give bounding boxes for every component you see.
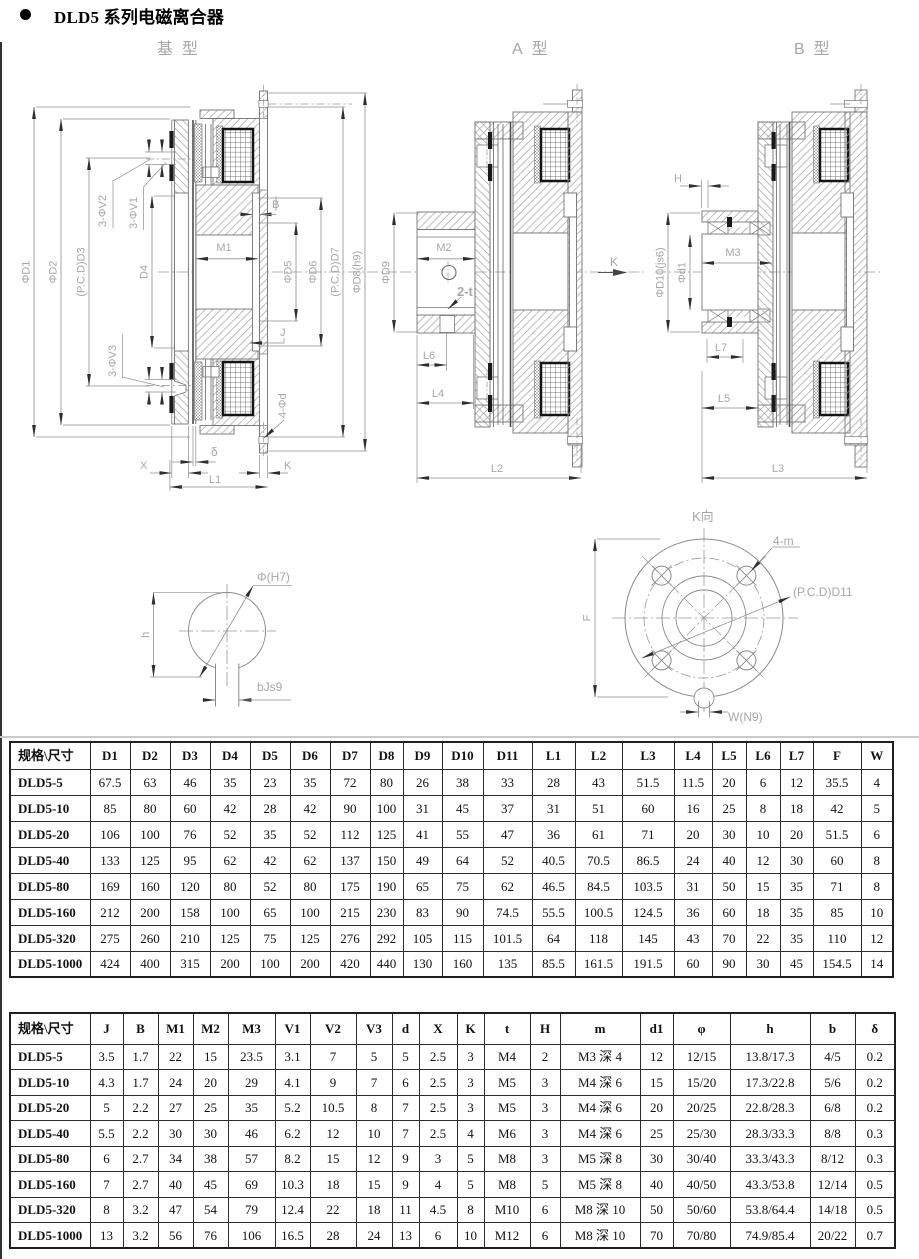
svg-text:Φd1: Φd1	[677, 262, 689, 283]
svg-text:W(N9): W(N9)	[728, 710, 763, 724]
svg-text:K: K	[284, 460, 292, 472]
svg-text:(P.C.D)D11: (P.C.D)D11	[793, 585, 853, 599]
svg-text:ΦD10(js6): ΦD10(js6)	[655, 247, 667, 297]
svg-text:L4: L4	[432, 388, 444, 400]
svg-text:A 型: A 型	[512, 40, 548, 58]
svg-text:bJs9: bJs9	[257, 680, 283, 694]
svg-text:h: h	[140, 632, 152, 638]
svg-text:F: F	[582, 614, 594, 621]
svg-text:X: X	[140, 460, 148, 472]
svg-text:3-ΦV1: 3-ΦV1	[128, 197, 140, 229]
svg-text:L7: L7	[715, 342, 727, 354]
svg-text:(P.C.D)D3: (P.C.D)D3	[76, 247, 88, 296]
svg-text:ΦD6: ΦD6	[308, 261, 320, 284]
svg-text:D4: D4	[139, 265, 151, 279]
svg-text:L6: L6	[423, 350, 435, 362]
svg-text:ΦD9: ΦD9	[381, 261, 393, 284]
svg-text:L2: L2	[491, 463, 503, 475]
svg-text:4-Φd: 4-Φd	[277, 393, 289, 418]
svg-text:基 型: 基 型	[157, 40, 198, 58]
svg-text:L5: L5	[718, 393, 730, 405]
svg-text:ΦD2: ΦD2	[48, 261, 60, 284]
svg-text:K: K	[610, 255, 618, 269]
svg-text:ΦD5: ΦD5	[283, 261, 295, 284]
svg-text:L1: L1	[209, 474, 221, 486]
svg-text:(P.C.D)D7: (P.C.D)D7	[330, 247, 342, 296]
svg-text:M2: M2	[436, 242, 451, 254]
svg-text:H: H	[674, 173, 682, 185]
svg-text:B 型: B 型	[794, 40, 830, 58]
svg-text:ΦD1: ΦD1	[21, 261, 33, 284]
svg-text:3-ΦV3: 3-ΦV3	[107, 345, 119, 377]
svg-text:4-m: 4-m	[773, 534, 794, 548]
svg-text:M1: M1	[216, 242, 231, 254]
svg-text:2-t: 2-t	[457, 284, 474, 299]
svg-text:M3: M3	[725, 247, 740, 259]
svg-text:J: J	[280, 327, 286, 339]
svg-text:L3: L3	[772, 463, 784, 475]
svg-text:ΦD8(h9): ΦD8(h9)	[352, 251, 364, 293]
svg-text:K向: K向	[692, 509, 714, 524]
svg-text:3-ΦV2: 3-ΦV2	[97, 195, 109, 227]
svg-text:δ: δ	[211, 445, 218, 459]
svg-text:Φ(H7): Φ(H7)	[257, 570, 290, 584]
